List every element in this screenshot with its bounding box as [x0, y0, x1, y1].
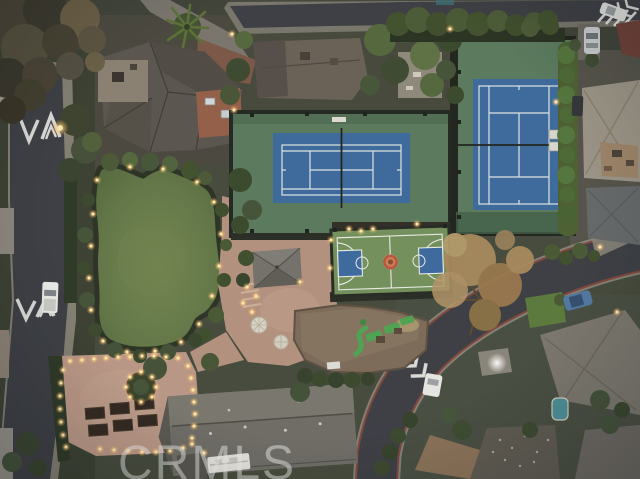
court-bench — [332, 117, 346, 122]
dark-car — [572, 96, 584, 116]
aerial-property-photo: CRMLS — [0, 0, 640, 479]
aerial-scene-canvas — [0, 0, 640, 479]
park-bench — [327, 361, 341, 369]
gazebo-roof — [252, 248, 302, 288]
second-house-roof — [253, 38, 368, 100]
playground — [294, 305, 428, 373]
backyard-pool — [552, 398, 568, 420]
court-bench — [549, 142, 559, 151]
silver-car — [584, 27, 600, 54]
neighbor-house-northeast — [582, 80, 640, 182]
white-pickup-truck — [41, 282, 58, 314]
garage-light-glow — [487, 353, 507, 373]
neighbor-house-east — [586, 186, 640, 245]
neighbor-tennis-court — [456, 38, 574, 234]
teal-car-top-edge — [436, 0, 454, 5]
main-tennis-court — [231, 112, 450, 236]
